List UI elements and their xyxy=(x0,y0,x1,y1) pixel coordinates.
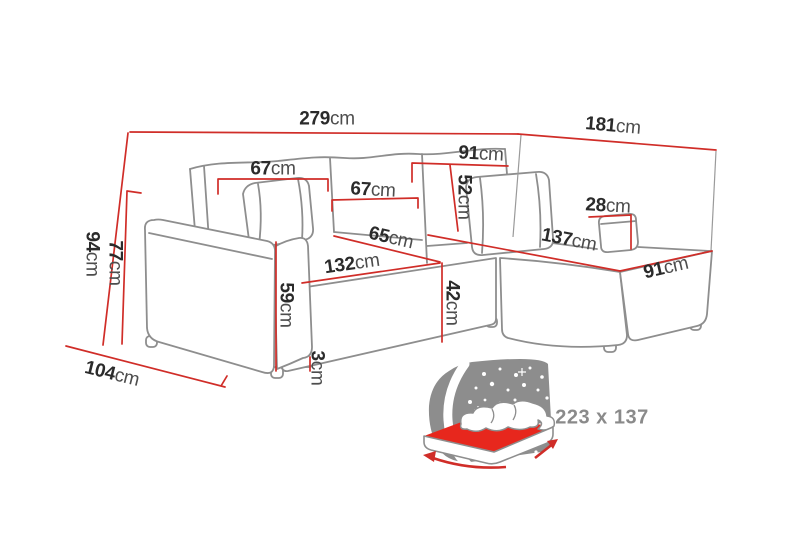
sofa-dimensions-diagram: 279cm 181cm 91cm 67cm 67cm 52cm 28cm 94c… xyxy=(0,0,800,533)
back-cushion-seam-1 xyxy=(330,158,334,232)
dim-label-total-height: 94cm xyxy=(83,231,102,276)
dim-label-total-width: 279cm xyxy=(299,110,355,129)
dim-label-chaise-side-depth: 181cm xyxy=(585,114,642,138)
dim-label-armrest-front-height: 59cm xyxy=(277,282,296,327)
dim-line-94 xyxy=(103,133,128,345)
sleeping-function-icon xyxy=(423,359,558,468)
dim-label-seat-height: 42cm xyxy=(443,280,462,325)
dim-label-arm-back-height: 77cm xyxy=(106,240,125,285)
dim-label-right-armrest-height: 28cm xyxy=(585,195,631,216)
back-cushion-seam-2 xyxy=(422,154,427,263)
left-armrest-front-face xyxy=(145,220,275,374)
sofa-outline xyxy=(145,149,712,378)
dim-label-leg-height: 3cm xyxy=(308,350,327,385)
dim-label-backrest-height: 52cm xyxy=(455,174,474,219)
chaise-front-face xyxy=(500,258,627,347)
right-armrest xyxy=(599,214,638,252)
sleeping-area-size: 223 x 137 xyxy=(555,407,648,430)
dim-line-279 xyxy=(130,132,518,134)
dim-label-back-cushion-middle: 67cm xyxy=(350,179,396,200)
dim-label-backrest-section-width: 91cm xyxy=(458,143,504,164)
dim-label-back-cushion-left: 67cm xyxy=(250,160,295,179)
